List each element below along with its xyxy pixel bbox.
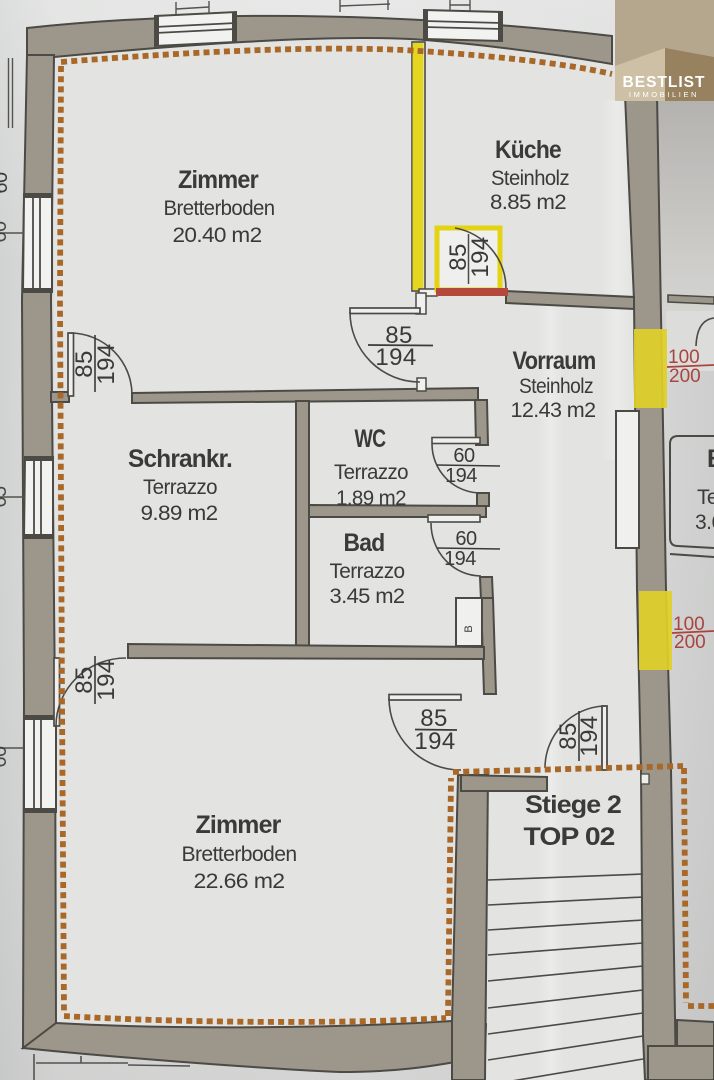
- svg-text:194: 194: [445, 465, 477, 487]
- svg-text:194: 194: [444, 548, 476, 570]
- svg-text:B: B: [707, 445, 714, 473]
- svg-text:60: 60: [0, 221, 11, 243]
- svg-text:Bad: Bad: [344, 529, 385, 557]
- svg-text:194: 194: [93, 343, 120, 384]
- svg-text:1.89 m2: 1.89 m2: [336, 487, 406, 510]
- svg-text:Steinholz: Steinholz: [491, 167, 569, 190]
- svg-text:Terrazzo: Terrazzo: [143, 476, 217, 499]
- svg-text:22.66 m2: 22.66 m2: [194, 870, 285, 893]
- svg-text:9.89 m2: 9.89 m2: [141, 502, 218, 525]
- svg-text:Zimmer: Zimmer: [178, 166, 259, 194]
- svg-text:60: 60: [0, 746, 11, 768]
- svg-text:Bretterboden: Bretterboden: [164, 197, 275, 220]
- svg-text:200: 200: [669, 366, 701, 387]
- svg-text:3.45 m2: 3.45 m2: [330, 585, 405, 608]
- svg-text:Steinholz: Steinholz: [519, 375, 593, 398]
- svg-text:8.85 m2: 8.85 m2: [490, 191, 566, 214]
- svg-text:100: 100: [668, 347, 700, 368]
- svg-text:60: 60: [0, 172, 12, 194]
- svg-text:Schrankr.: Schrankr.: [128, 445, 232, 473]
- svg-text:Te: Te: [697, 486, 714, 509]
- svg-text:Terrazzo: Terrazzo: [330, 560, 405, 583]
- svg-text:60: 60: [453, 445, 475, 467]
- svg-text:194: 194: [93, 659, 120, 700]
- svg-text:194: 194: [467, 236, 494, 277]
- svg-text:3.6: 3.6: [695, 511, 714, 534]
- svg-text:BESTLIST: BESTLIST: [623, 74, 706, 91]
- svg-text:B: B: [463, 625, 475, 632]
- svg-text:200: 200: [674, 632, 706, 653]
- svg-text:Zimmer: Zimmer: [196, 811, 282, 839]
- svg-text:20.40 m2: 20.40 m2: [173, 224, 262, 247]
- svg-text:Vorraum: Vorraum: [513, 347, 596, 375]
- svg-text:12.43 m2: 12.43 m2: [511, 399, 596, 422]
- svg-text:Küche: Küche: [495, 136, 562, 164]
- svg-text:WC: WC: [355, 425, 387, 453]
- svg-text:194: 194: [414, 728, 455, 755]
- svg-text:60: 60: [455, 528, 477, 550]
- svg-text:194: 194: [375, 344, 416, 371]
- svg-text:TOP 02: TOP 02: [524, 823, 615, 851]
- svg-text:Terrazzo: Terrazzo: [334, 461, 408, 484]
- svg-text:Bretterboden: Bretterboden: [182, 843, 297, 866]
- svg-text:Stiege 2: Stiege 2: [525, 791, 621, 819]
- svg-text:65: 65: [0, 486, 11, 508]
- svg-text:IMMOBILIEN: IMMOBILIEN: [629, 90, 699, 99]
- svg-text:194: 194: [576, 715, 603, 756]
